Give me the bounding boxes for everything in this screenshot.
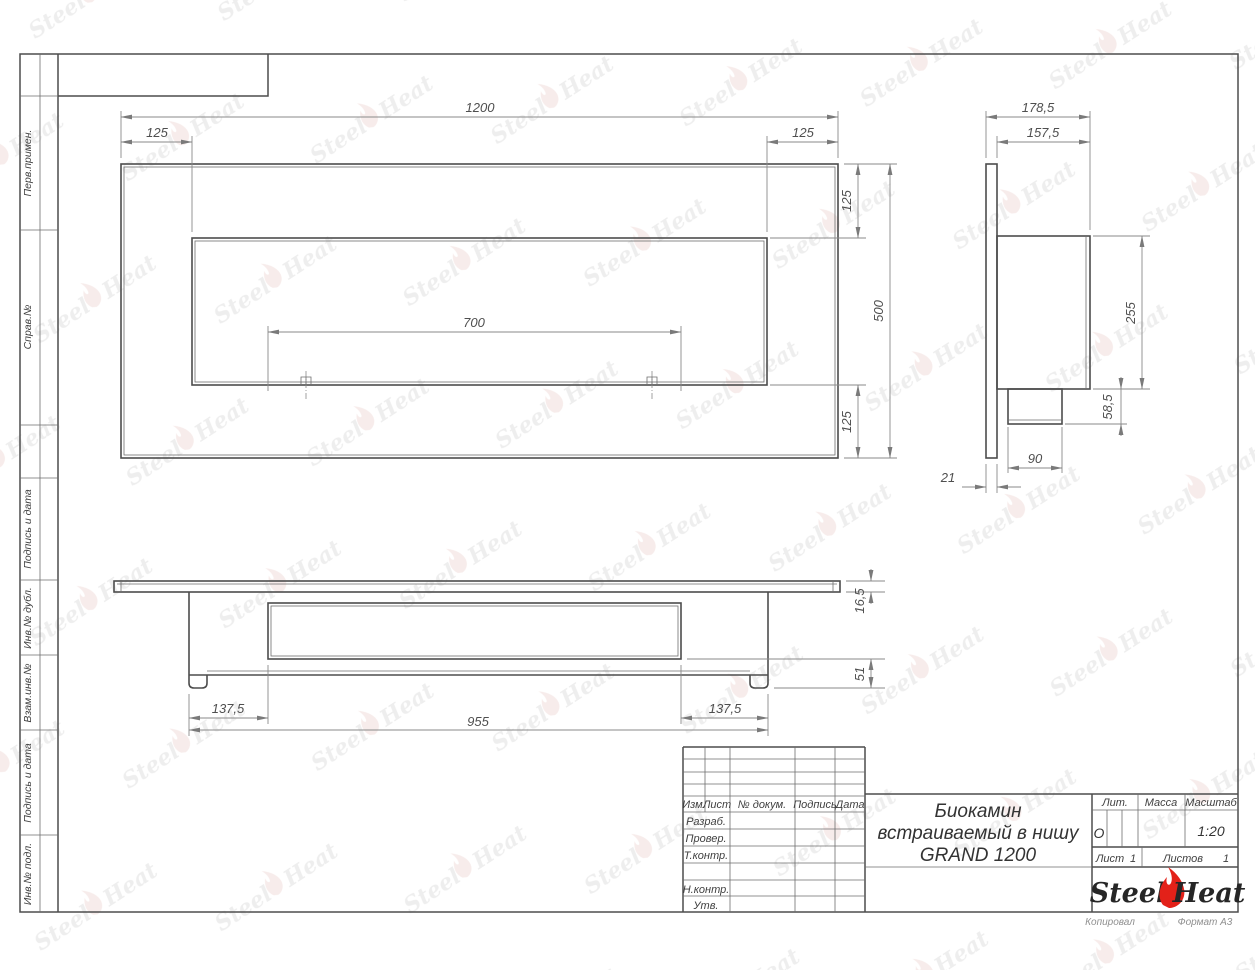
margin-label-sprav-no: Справ.№: [22, 305, 34, 350]
dim-side-body-height: 255: [1123, 301, 1138, 324]
row-prover: Провер.: [686, 833, 727, 845]
row-utv: Утв.: [693, 900, 719, 912]
margin-label-perv-primen: Перв.примен.: [22, 130, 34, 197]
row-razrab: Разраб.: [686, 816, 726, 828]
col-sign: Подпись: [793, 799, 837, 811]
row-nkontr: Н.контр.: [683, 884, 730, 896]
logo-heat-text: Heat: [1172, 878, 1246, 909]
dim-side-panel-thickness: 21: [940, 470, 955, 485]
dim-plan-inner-depth: 51: [852, 667, 867, 681]
drawing-sheet: Steel Heat Steel Heat Перв.примен.: [0, 0, 1255, 970]
dim-front-width: 1200: [466, 100, 496, 115]
margin-label-podpis-data-2: Подпись и дата: [22, 743, 34, 823]
doc-title-line3: GRAND 1200: [920, 845, 1037, 866]
dim-plan-flange-thickness: 16,5: [852, 588, 867, 614]
dim-front-left-offset: 125: [146, 125, 168, 140]
doc-title-line1: Биокамин: [934, 801, 1022, 822]
sheet-label: Лист: [1095, 853, 1124, 865]
margin-label-inv-podl: Инв.№ подл.: [22, 843, 34, 905]
scale-value: 1:20: [1197, 823, 1224, 839]
copied-label: Копировал: [1085, 917, 1135, 928]
lit-label: Лит.: [1101, 797, 1128, 809]
margin-label-podpis-data-1: Подпись и дата: [22, 489, 34, 569]
margin-label-vzam-inv: Взам.инв.№: [22, 663, 34, 722]
dim-side-body-depth: 157,5: [1027, 125, 1060, 140]
dim-front-height: 500: [871, 299, 886, 321]
dim-front-bottom-offset: 125: [839, 410, 854, 432]
dim-front-right-offset: 125: [792, 125, 814, 140]
dim-side-spout-width: 90: [1028, 451, 1043, 466]
dim-plan-body-width: 955: [467, 714, 489, 729]
scale-label: Масштаб: [1185, 797, 1237, 809]
lit-value: О: [1094, 825, 1105, 841]
dim-front-burner-span: 700: [463, 315, 485, 330]
sheet-value: 1: [1130, 853, 1136, 865]
col-date: Дата: [833, 799, 864, 811]
dim-plan-left-margin: 137,5: [212, 701, 245, 716]
dim-front-top-offset: 125: [839, 189, 854, 211]
format-label: Формат А3: [1178, 917, 1233, 928]
dim-plan-right-margin: 137,5: [709, 701, 742, 716]
margin-label-inv-dubl: Инв.№ дубл.: [22, 587, 34, 649]
sheets-value: 1: [1223, 853, 1229, 865]
dim-side-spout-height: 58,5: [1100, 394, 1115, 420]
dim-side-total-depth: 178,5: [1022, 100, 1055, 115]
col-list: Лист: [702, 799, 731, 811]
col-doc: № докум.: [738, 799, 786, 811]
sheets-label: Листов: [1162, 853, 1203, 865]
mass-label: Масса: [1145, 797, 1178, 809]
logo-steel-text: Steel: [1090, 878, 1167, 909]
doc-title-line2: встраиваемый в нишу: [877, 823, 1080, 844]
technical-drawing: Steel Heat Steel Heat Перв.примен.: [0, 0, 1255, 970]
row-tkontr: Т.контр.: [684, 850, 728, 862]
